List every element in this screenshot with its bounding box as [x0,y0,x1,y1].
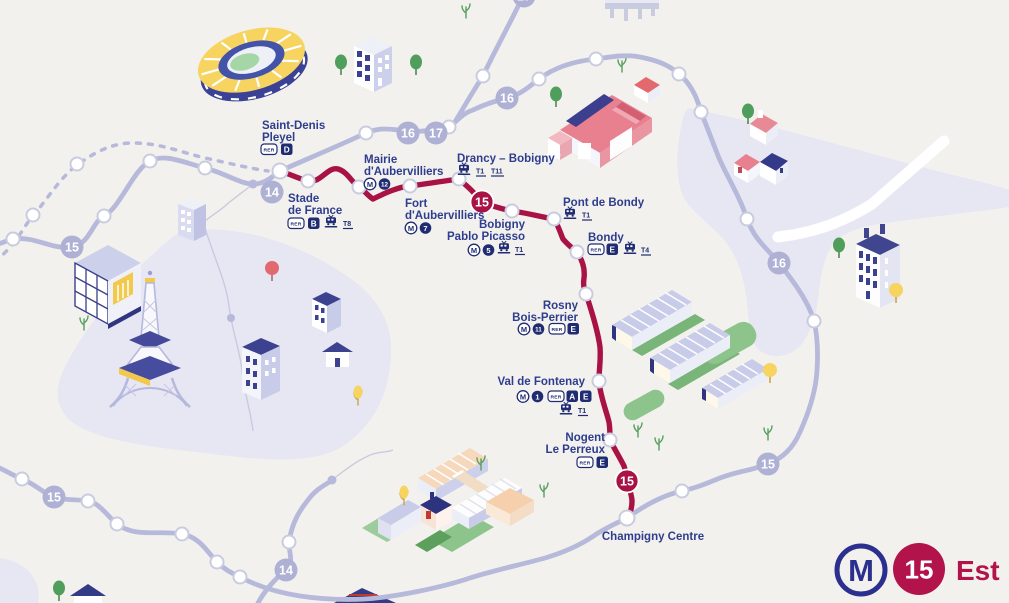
svg-text:E: E [599,458,605,467]
svg-text:M: M [520,392,526,401]
line15-est-map: 15 14 16 17 16 17 16 15 15 14 15 15 Sain… [0,0,1009,603]
svg-text:Bondy: Bondy [588,232,624,244]
svg-text:Drancy – Bobigny: Drancy – Bobigny [457,153,555,165]
svg-text:T1: T1 [515,247,523,254]
rer-badge-icon: RER [588,244,604,255]
station-dot-champigny-centre[interactable] [620,511,635,526]
svg-text:d'Aubervilliers: d'Aubervilliers [405,210,484,222]
svg-text:Pablo Picasso: Pablo Picasso [447,231,525,243]
svg-text:RER: RER [552,327,563,333]
svg-text:T1: T1 [476,169,484,176]
line-badge-16-gray: 16 [768,252,791,275]
rer-line-badge: E [568,323,580,335]
metro-badge-icon: M [518,323,530,335]
svg-text:RER: RER [591,248,602,254]
svg-text:17: 17 [517,0,531,4]
station-dot-val-de-fontenay[interactable] [593,375,606,388]
svg-text:RER: RER [580,461,591,467]
line-15-logo: 15 [893,543,945,595]
svg-text:1: 1 [535,392,539,401]
line-badge-14-gray: 14 [275,559,298,582]
svg-text:15: 15 [65,241,79,255]
svg-text:E: E [583,392,589,401]
rer-line-badge: E [597,457,609,469]
svg-text:16: 16 [772,257,786,271]
metro-line-badge: 12 [379,178,391,190]
svg-text:15: 15 [761,458,775,472]
svg-text:RER: RER [551,395,562,401]
svg-text:16: 16 [401,127,415,141]
rer-line-badge: B [308,218,320,230]
svg-text:T11: T11 [491,169,503,176]
svg-text:16: 16 [500,92,514,106]
svg-text:Nogent: Nogent [565,432,605,444]
rer-line-badge: E [580,391,592,403]
svg-text:15: 15 [620,475,634,489]
rer-badge-icon: RER [549,324,565,335]
metro-line-badge: 7 [420,222,432,234]
metro-badge-icon: M [364,178,376,190]
svg-text:E: E [609,245,615,254]
station-dot-bondy[interactable] [571,246,584,259]
tram-line-label: T11 [491,169,504,177]
line-badge-15-gray: 15 [757,453,780,476]
tall-building [178,198,206,241]
svg-text:T8: T8 [343,221,351,228]
svg-text:M: M [471,246,477,255]
svg-text:15: 15 [905,555,934,585]
svg-text:Bobigny: Bobigny [479,219,526,231]
rer-badge-icon: RER [548,391,564,402]
svg-text:T1: T1 [578,408,586,415]
svg-text:5: 5 [486,246,490,255]
metro-line-badge: 11 [533,323,545,335]
line-terminus-dot [328,476,337,485]
svg-text:14: 14 [265,186,279,200]
line-terminus-dot [249,180,258,189]
svg-text:12: 12 [381,181,389,188]
svg-text:T4: T4 [641,248,649,255]
svg-text:14: 14 [279,564,293,578]
svg-text:D: D [284,145,290,154]
line-badge-15-gray: 15 [43,486,66,509]
line-name-label: Est [956,555,1000,586]
metro-line-badge: 5 [483,244,495,256]
line-badge-15-gray: 15 [61,236,84,259]
metro-badge-icon: M [405,222,417,234]
svg-text:Saint-Denis: Saint-Denis [262,120,325,132]
svg-text:A: A [569,392,575,401]
svg-text:17: 17 [429,127,443,141]
line-badge-15-red: 15 [616,470,639,493]
station-dot-fort-daubervilliers[interactable] [404,180,417,193]
line-badge-14-gray: 14 [261,181,284,204]
line-badge-16-gray: 16 [496,87,519,110]
metro-badge-icon: M [517,391,529,403]
rer-line-badge: A [567,391,579,403]
rer-badge-icon: RER [577,457,593,468]
rer-badge-icon: RER [288,218,304,229]
svg-text:Mairie: Mairie [364,154,397,166]
svg-text:7: 7 [423,224,427,233]
svg-text:M: M [521,325,527,334]
svg-text:E: E [570,325,576,334]
city-building [312,292,341,333]
line-badge-17-gray: 17 [425,122,448,145]
svg-text:Val de Fontenay: Val de Fontenay [497,376,585,388]
svg-text:d'Aubervilliers: d'Aubervilliers [364,166,443,178]
svg-text:de France: de France [288,205,342,217]
svg-text:Bois-Perrier: Bois-Perrier [512,312,578,324]
station-dot-mairie-daubervilliers[interactable] [353,181,366,194]
line-badge-16-gray: 16 [397,122,420,145]
svg-text:Fort: Fort [405,198,428,210]
station-dot-pont-de-bondy[interactable] [548,213,561,226]
rer-line-badge: E [607,244,619,256]
svg-text:M: M [367,180,373,189]
rer-badge-icon: RER [261,144,277,155]
road-node [227,314,235,322]
office-building [354,37,392,92]
svg-text:RER: RER [264,148,275,154]
svg-text:Pleyel: Pleyel [262,132,295,144]
station-dot-saint-denis-pleyel[interactable] [273,164,288,179]
rer-line-badge: D [281,144,293,156]
svg-text:B: B [311,219,317,228]
svg-text:Pont de Bondy: Pont de Bondy [563,197,645,209]
station-label-champigny-centre[interactable]: Champigny Centre [602,531,704,543]
station-dot-bobigny-pablo-picasso[interactable] [506,205,519,218]
svg-text:T1: T1 [582,213,590,220]
svg-text:RER: RER [291,222,302,228]
svg-text:Champigny Centre: Champigny Centre [602,531,704,543]
station-dot-stade-de-france[interactable] [302,175,315,188]
city-building [242,338,280,400]
svg-text:15: 15 [47,491,61,505]
svg-text:Le Perreux: Le Perreux [546,444,606,456]
svg-text:Rosny: Rosny [543,300,579,312]
svg-text:Stade: Stade [288,193,319,205]
svg-text:M: M [408,224,414,233]
station-dot-rosny-bois-perrier[interactable] [580,288,593,301]
station-dot-nogent-le-perreux[interactable] [604,434,617,447]
svg-text:15: 15 [475,196,489,210]
metro-badge-icon: M [468,244,480,256]
svg-text:M: M [848,553,874,588]
transit-map-canvas: 15 14 16 17 16 17 16 15 15 14 15 15 Sain… [0,0,1009,603]
metro-line-badge: 1 [532,391,544,403]
svg-text:11: 11 [535,326,542,333]
